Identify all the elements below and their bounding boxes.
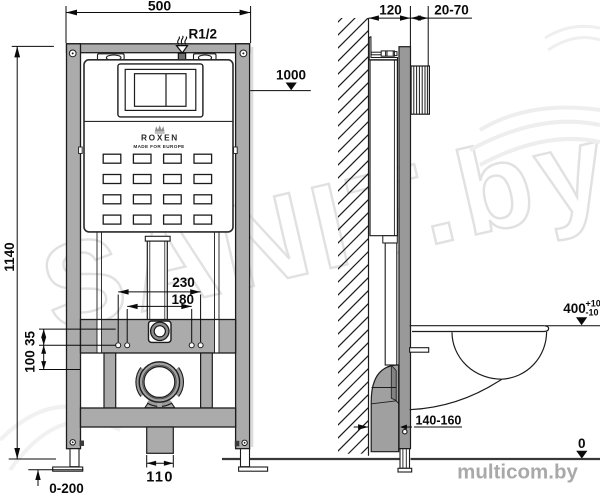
svg-text:R1/2: R1/2 bbox=[189, 27, 218, 42]
svg-text:140-160: 140-160 bbox=[416, 413, 462, 427]
svg-text:0-200: 0-200 bbox=[49, 481, 84, 496]
svg-text:35: 35 bbox=[23, 331, 38, 347]
svg-text:400: 400 bbox=[563, 301, 586, 316]
svg-text:230: 230 bbox=[172, 275, 195, 290]
svg-text:500: 500 bbox=[148, 0, 172, 14]
svg-text:120: 120 bbox=[379, 3, 402, 18]
svg-text:20-70: 20-70 bbox=[434, 3, 469, 18]
svg-text:180: 180 bbox=[172, 292, 195, 307]
svg-text:ROXEN: ROXEN bbox=[141, 132, 179, 142]
svg-text:MADE FOR EUROPE: MADE FOR EUROPE bbox=[133, 144, 184, 149]
svg-text:multicom.by: multicom.by bbox=[457, 461, 578, 484]
svg-text:1140: 1140 bbox=[2, 242, 17, 271]
svg-text:0: 0 bbox=[578, 436, 586, 451]
svg-text:-10: -10 bbox=[586, 308, 599, 318]
svg-text:110: 110 bbox=[146, 470, 174, 486]
svg-text:1000: 1000 bbox=[276, 68, 306, 83]
svg-text:100: 100 bbox=[23, 350, 38, 373]
